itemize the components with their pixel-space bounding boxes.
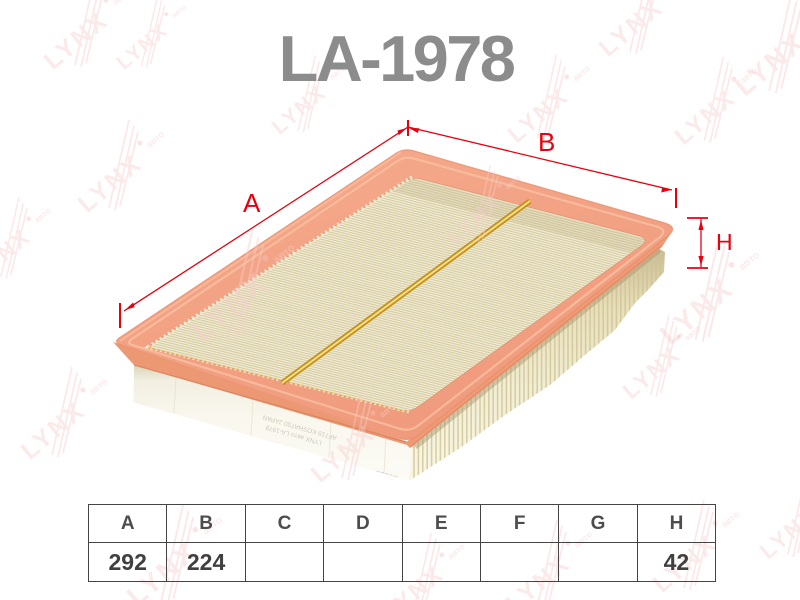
svg-text:A: A bbox=[243, 188, 261, 218]
svg-text:H: H bbox=[716, 229, 733, 255]
svg-text:B: B bbox=[538, 127, 555, 157]
